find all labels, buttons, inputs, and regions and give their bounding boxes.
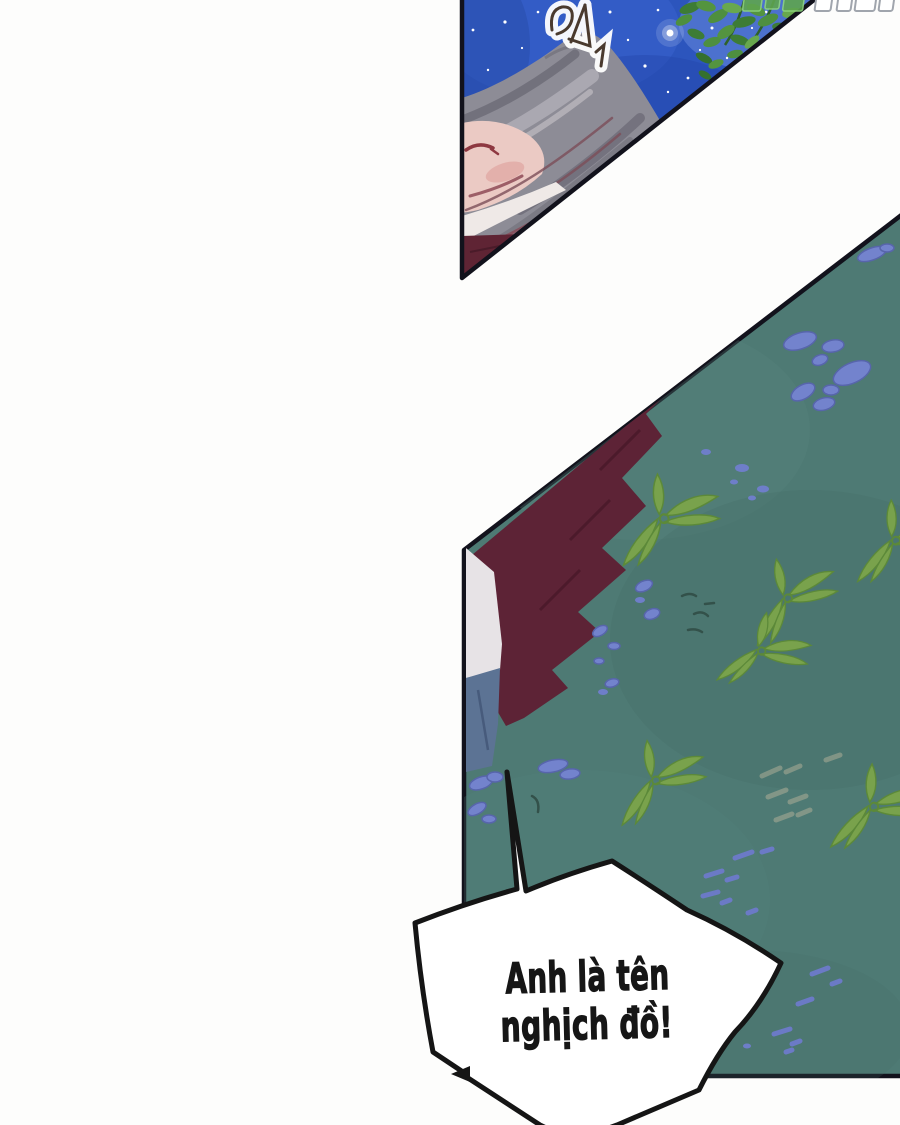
speech-text: Anh là tên nghịch đồ!	[499, 950, 673, 1051]
panel-night-sky	[410, 0, 835, 290]
speech-text-line-1: Anh là tên	[505, 950, 670, 1003]
speech-text-line-2: nghịch đồ!	[500, 998, 673, 1051]
comic-page: Anh là tên nghịch đồ!	[0, 0, 900, 1125]
watermark-logo	[742, 0, 894, 11]
comic-artwork: Anh là tên nghịch đồ!	[0, 0, 900, 1125]
